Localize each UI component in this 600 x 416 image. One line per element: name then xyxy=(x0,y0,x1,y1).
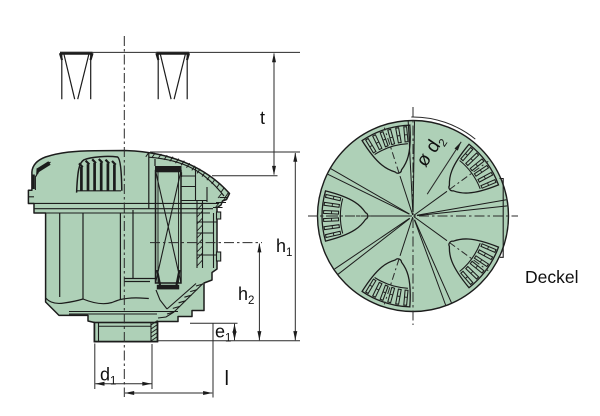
svg-text:d1: d1 xyxy=(100,365,116,388)
svg-text:e1: e1 xyxy=(215,322,231,345)
svg-text:h2: h2 xyxy=(238,284,254,307)
svg-text:t: t xyxy=(260,108,265,128)
svg-text:h1: h1 xyxy=(276,236,292,259)
svg-text:Deckel: Deckel xyxy=(525,267,579,287)
svg-text:l: l xyxy=(225,368,229,390)
